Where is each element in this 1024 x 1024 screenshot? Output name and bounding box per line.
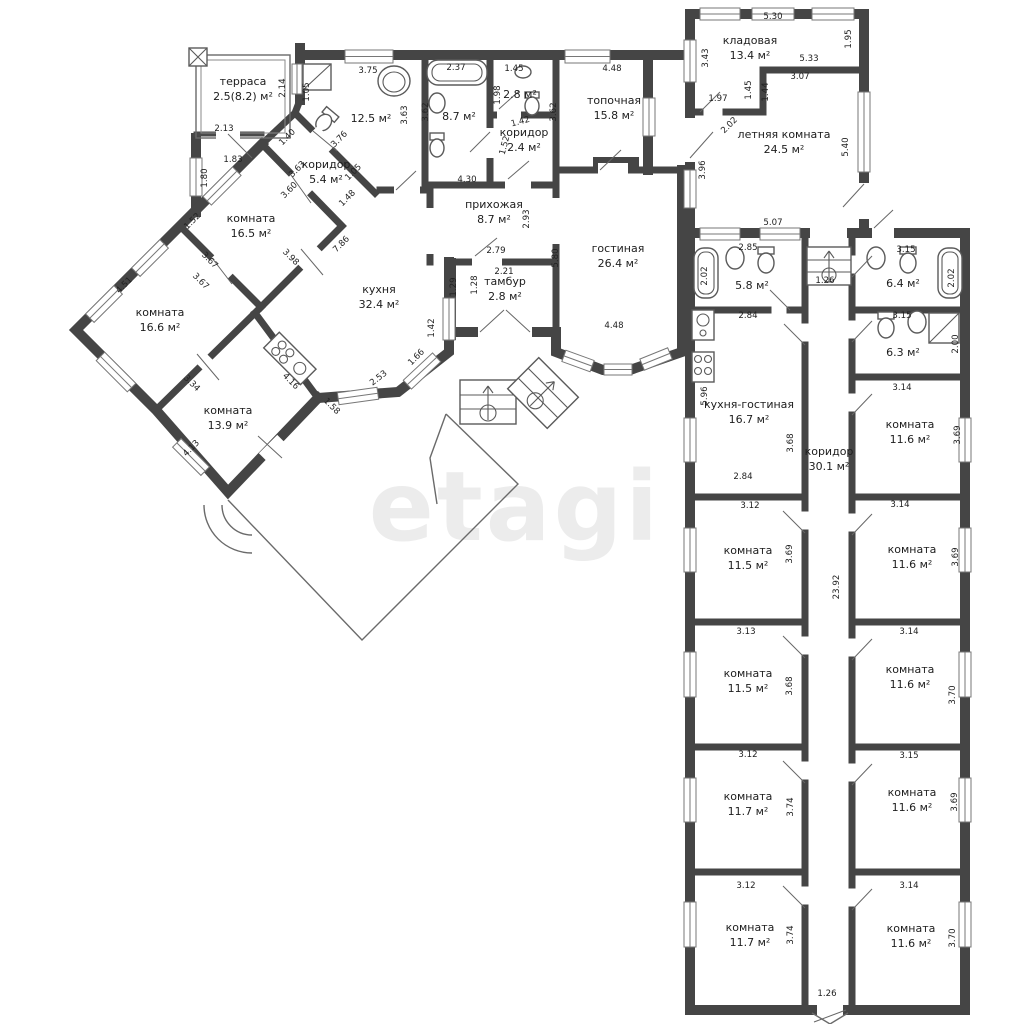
room-name-label: комната bbox=[724, 544, 773, 557]
kitchen-fixtures bbox=[264, 310, 714, 385]
window-icon bbox=[812, 8, 854, 20]
dimension-label: 3.13 bbox=[736, 627, 755, 637]
dimension-label: 3.43 bbox=[701, 48, 711, 67]
porch-step-arc bbox=[204, 505, 252, 553]
room-area-label: 16.6 м² bbox=[140, 321, 181, 334]
room-area-label: 5.4 м² bbox=[309, 173, 343, 186]
dimension-label: 3.69 bbox=[953, 425, 963, 444]
door-opening bbox=[857, 183, 871, 219]
room-name-label: комната bbox=[888, 543, 937, 556]
dimension-label: 1.45 bbox=[504, 64, 523, 74]
room-area-label: 6.3 м² bbox=[886, 346, 920, 359]
right-building-walls bbox=[690, 14, 965, 1010]
watermark: etagi bbox=[369, 451, 661, 563]
door-opening bbox=[423, 208, 437, 254]
door-leaf-icon bbox=[783, 761, 805, 783]
room-area-label: 11.7 м² bbox=[728, 805, 769, 818]
dimension-label: 3.12 bbox=[740, 501, 759, 511]
dimension-label: 5.33 bbox=[799, 54, 818, 64]
dimension-label: 3.68 bbox=[786, 433, 796, 452]
window-icon bbox=[562, 350, 594, 372]
room-area-label: 8.7 м² bbox=[477, 213, 511, 226]
window-icon bbox=[760, 228, 800, 240]
dimension-label: 3.76 bbox=[329, 129, 350, 150]
window-icon bbox=[643, 98, 655, 136]
dimension-label: 1.44 bbox=[761, 82, 771, 101]
door-leaf-icon bbox=[508, 161, 529, 179]
window-icon bbox=[565, 50, 610, 63]
room-area-label: 24.5 м² bbox=[764, 143, 805, 156]
door-leaf-icon bbox=[852, 394, 872, 415]
window-icon bbox=[337, 387, 378, 404]
window-icon bbox=[684, 528, 696, 572]
floor-plan-drawing: etagi bbox=[0, 0, 1024, 1024]
room-name-label: коридор bbox=[805, 445, 854, 458]
room-name-label: комната bbox=[204, 404, 253, 417]
door-opening bbox=[478, 325, 532, 339]
dimension-label: 2.13 bbox=[214, 124, 233, 134]
room-area-label: 11.5 м² bbox=[728, 682, 769, 695]
window-icon bbox=[132, 240, 169, 277]
room-name-label: кладовая bbox=[723, 34, 778, 47]
dimension-label: 3.70 bbox=[948, 928, 958, 947]
dimension-label: 3.74 bbox=[786, 925, 796, 944]
dimension-label: 4.30 bbox=[457, 175, 476, 185]
dimension-label: 1.26 bbox=[815, 276, 834, 286]
room-area-label: 11.6 м² bbox=[891, 937, 932, 950]
room-area-label: 8.7 м² bbox=[442, 110, 476, 123]
dimension-label: 2.53 bbox=[368, 369, 389, 389]
window-icon bbox=[684, 418, 696, 462]
window-icon bbox=[700, 228, 740, 240]
room-name-label: гостиная bbox=[592, 242, 645, 255]
room-area-label: 13.9 м² bbox=[208, 419, 249, 432]
dimension-label: 3.14 bbox=[899, 881, 918, 891]
dimension-label: 5.07 bbox=[763, 218, 782, 228]
room-area-label: 11.7 м² bbox=[730, 936, 771, 949]
room-name-label: комната bbox=[724, 790, 773, 803]
dimension-label: 3.14 bbox=[892, 383, 911, 393]
dimension-label: 3.62 bbox=[421, 102, 431, 121]
window-icon bbox=[292, 64, 302, 94]
dimension-label: 3.69 bbox=[950, 792, 960, 811]
room-area-label: 11.6 м² bbox=[892, 558, 933, 571]
room-name-label: топочная bbox=[587, 94, 641, 107]
room-area-label: 15.8 м² bbox=[594, 109, 635, 122]
window-icon bbox=[684, 902, 696, 947]
room-name-label: кухня-гостиная bbox=[704, 398, 794, 411]
door-opening bbox=[505, 178, 531, 192]
door-opening bbox=[872, 226, 894, 240]
room-name-label: кухня bbox=[362, 283, 395, 296]
dimension-label: 3.12 bbox=[738, 750, 757, 760]
window-icon bbox=[345, 50, 393, 63]
dimension-label: 3.70 bbox=[948, 685, 958, 704]
dimension-label: 1.26 bbox=[817, 989, 836, 999]
room-area-label: 13.4 м² bbox=[730, 49, 771, 62]
dimension-label: 3.15 bbox=[892, 311, 911, 321]
door-leaf-icon bbox=[783, 636, 805, 658]
door-leaf-icon bbox=[783, 886, 805, 908]
dimension-label: 3.69 bbox=[785, 544, 795, 563]
room-area-label: 5.8 м² bbox=[735, 279, 769, 292]
dimension-label: 2.00 bbox=[951, 334, 961, 353]
dimension-label: 3.63 bbox=[400, 105, 410, 124]
toilet-icon bbox=[758, 247, 774, 273]
room-area-label: 32.4 м² bbox=[359, 298, 400, 311]
window-icon bbox=[959, 778, 971, 822]
window-icon bbox=[959, 652, 971, 697]
door-leaf-icon bbox=[783, 511, 805, 533]
room-name-label: комната bbox=[724, 667, 773, 680]
room-name-label: прихожая bbox=[465, 198, 523, 211]
room-name-label: комната bbox=[886, 663, 935, 676]
dimension-label: 3.67 bbox=[190, 271, 211, 292]
exit-porch bbox=[812, 1013, 848, 1024]
door-opening bbox=[683, 118, 697, 162]
window-icon bbox=[684, 778, 696, 822]
room-area-label: 11.6 м² bbox=[892, 801, 933, 814]
dimension-label: 2.02 bbox=[947, 268, 957, 287]
room-name-label: комната bbox=[136, 306, 185, 319]
room-area-label: 11.6 м² bbox=[890, 433, 931, 446]
window-icon bbox=[684, 40, 696, 82]
room-area-label: 2.8 м² bbox=[503, 88, 537, 101]
door-leaf-icon bbox=[814, 1010, 846, 1022]
window-icon bbox=[959, 902, 971, 947]
door-opening bbox=[598, 163, 628, 177]
dimension-label: 1.28 bbox=[470, 275, 480, 294]
room-name-label: комната bbox=[888, 786, 937, 799]
room-area-label: 26.4 м² bbox=[598, 257, 639, 270]
door-leaf-icon bbox=[852, 321, 872, 342]
window-icon bbox=[858, 92, 870, 172]
room-area-label: 11.6 м² bbox=[890, 678, 931, 691]
window-icon bbox=[604, 364, 632, 375]
dimension-label: 2.93 bbox=[522, 209, 532, 228]
window-icon bbox=[96, 352, 136, 392]
stair-steps bbox=[460, 380, 516, 424]
room-area-label: 6.4 м² bbox=[886, 277, 920, 290]
room-area-label: 30.1 м² bbox=[809, 460, 850, 473]
door-leaf-icon bbox=[852, 256, 872, 277]
window-icon bbox=[443, 298, 455, 340]
dimension-label: 1.98 bbox=[493, 85, 503, 104]
window-icon bbox=[700, 8, 740, 20]
dimension-label: 3.98 bbox=[280, 247, 301, 268]
room-name-label: тамбур bbox=[484, 275, 526, 288]
dimension-label: 5.30 bbox=[763, 12, 782, 22]
dimension-label: 3.15 bbox=[896, 245, 915, 255]
dimension-label: 3.14 bbox=[899, 627, 918, 637]
stair-steps bbox=[508, 358, 579, 429]
dimension-label: 3.62 bbox=[549, 102, 559, 121]
room-name-label: коридор bbox=[500, 126, 549, 139]
room-name-label: комната bbox=[886, 418, 935, 431]
dimension-label: 3.68 bbox=[785, 676, 795, 695]
door-opening bbox=[548, 198, 562, 244]
window-icon bbox=[640, 348, 672, 370]
door-leaf-icon bbox=[852, 514, 872, 535]
dimension-label: 1.29 bbox=[449, 277, 459, 296]
room-area-label: 2.5(8.2) м² bbox=[213, 90, 273, 103]
dimension-label: 2.85 bbox=[738, 243, 757, 253]
floor-plan-page: etagi bbox=[0, 0, 1024, 1024]
dimension-label: 1.83 bbox=[223, 155, 242, 165]
dimension-label: 4.48 bbox=[602, 64, 621, 74]
dimension-label: 2.79 bbox=[486, 246, 505, 256]
door-leaf-icon bbox=[770, 290, 790, 310]
room-area-label: 2.8 м² bbox=[488, 290, 522, 303]
dimension-label: 2.84 bbox=[733, 472, 752, 482]
dimension-label: 4.48 bbox=[604, 321, 623, 331]
door-leaf-icon bbox=[852, 764, 872, 785]
room-area-label: 2.4 м² bbox=[507, 141, 541, 154]
room-name-label: коридор bbox=[302, 158, 351, 171]
dimension-label: 3.96 bbox=[698, 160, 708, 179]
window-icon bbox=[684, 652, 696, 697]
room-area-label: 11.5 м² bbox=[728, 559, 769, 572]
dimension-label: 23.92 bbox=[832, 575, 842, 600]
dimension-label: 1.95 bbox=[844, 29, 854, 48]
dimension-label: 1.42 bbox=[427, 318, 437, 337]
door-leaf-icon bbox=[784, 324, 805, 345]
room-name-label: комната bbox=[726, 921, 775, 934]
dimension-label: 2.37 bbox=[446, 63, 465, 73]
dimension-label: 3.15 bbox=[899, 751, 918, 761]
room-area-label: 16.7 м² bbox=[729, 413, 770, 426]
dimension-label: 1.80 bbox=[200, 168, 210, 187]
dimension-label: 3.07 bbox=[790, 72, 809, 82]
dimension-label: 2.14 bbox=[278, 78, 288, 97]
door-leaf-icon bbox=[874, 210, 893, 228]
dimension-label: 3.74 bbox=[786, 797, 796, 816]
room-name-label: комната bbox=[227, 212, 276, 225]
room-area-label: 16.5 м² bbox=[231, 227, 272, 240]
dimension-label: 5.80 bbox=[551, 248, 561, 267]
dimension-label: 3.69 bbox=[951, 547, 961, 566]
dimension-label: 3.75 bbox=[358, 66, 377, 76]
dimension-label: 1.45 bbox=[744, 80, 754, 99]
dimension-label: 3.14 bbox=[890, 500, 909, 510]
dimension-label: 5.40 bbox=[841, 137, 851, 156]
dimension-label: 3.12 bbox=[736, 881, 755, 891]
room-name-label: терраса bbox=[220, 75, 267, 88]
dimension-label: 1.97 bbox=[708, 94, 727, 104]
room-name-label: комната bbox=[887, 922, 936, 935]
door-leaf-icon bbox=[852, 639, 872, 660]
dimension-label: 1.48 bbox=[337, 188, 358, 209]
dimension-label: 1.05 bbox=[302, 82, 312, 101]
room-area-label: 12.5 м² bbox=[351, 112, 392, 125]
toilet-icon bbox=[430, 133, 444, 157]
dimension-label: 2.84 bbox=[738, 311, 757, 321]
door-opening bbox=[394, 183, 420, 197]
door-leaf-icon bbox=[852, 889, 872, 910]
room-name-label: летняя комната bbox=[738, 128, 831, 141]
dimension-label: 2.02 bbox=[700, 266, 710, 285]
window-icon bbox=[684, 170, 696, 208]
